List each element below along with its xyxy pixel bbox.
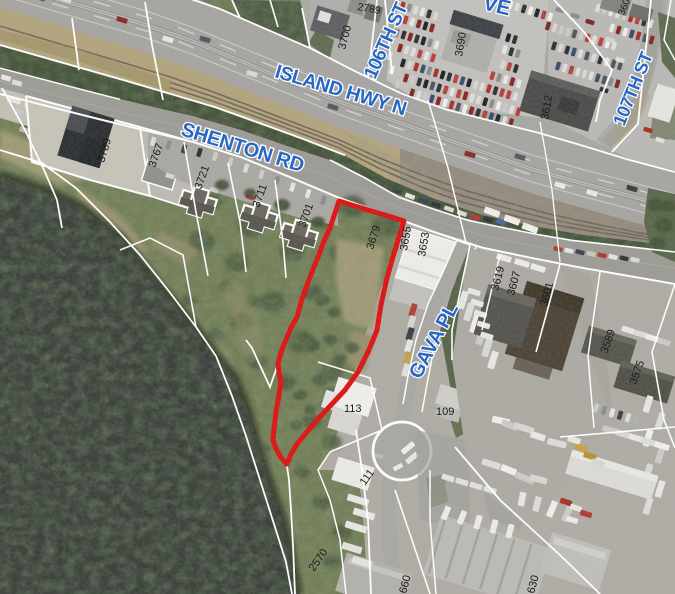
svg-text:113: 113 [344, 403, 362, 415]
svg-text:109: 109 [436, 406, 454, 418]
